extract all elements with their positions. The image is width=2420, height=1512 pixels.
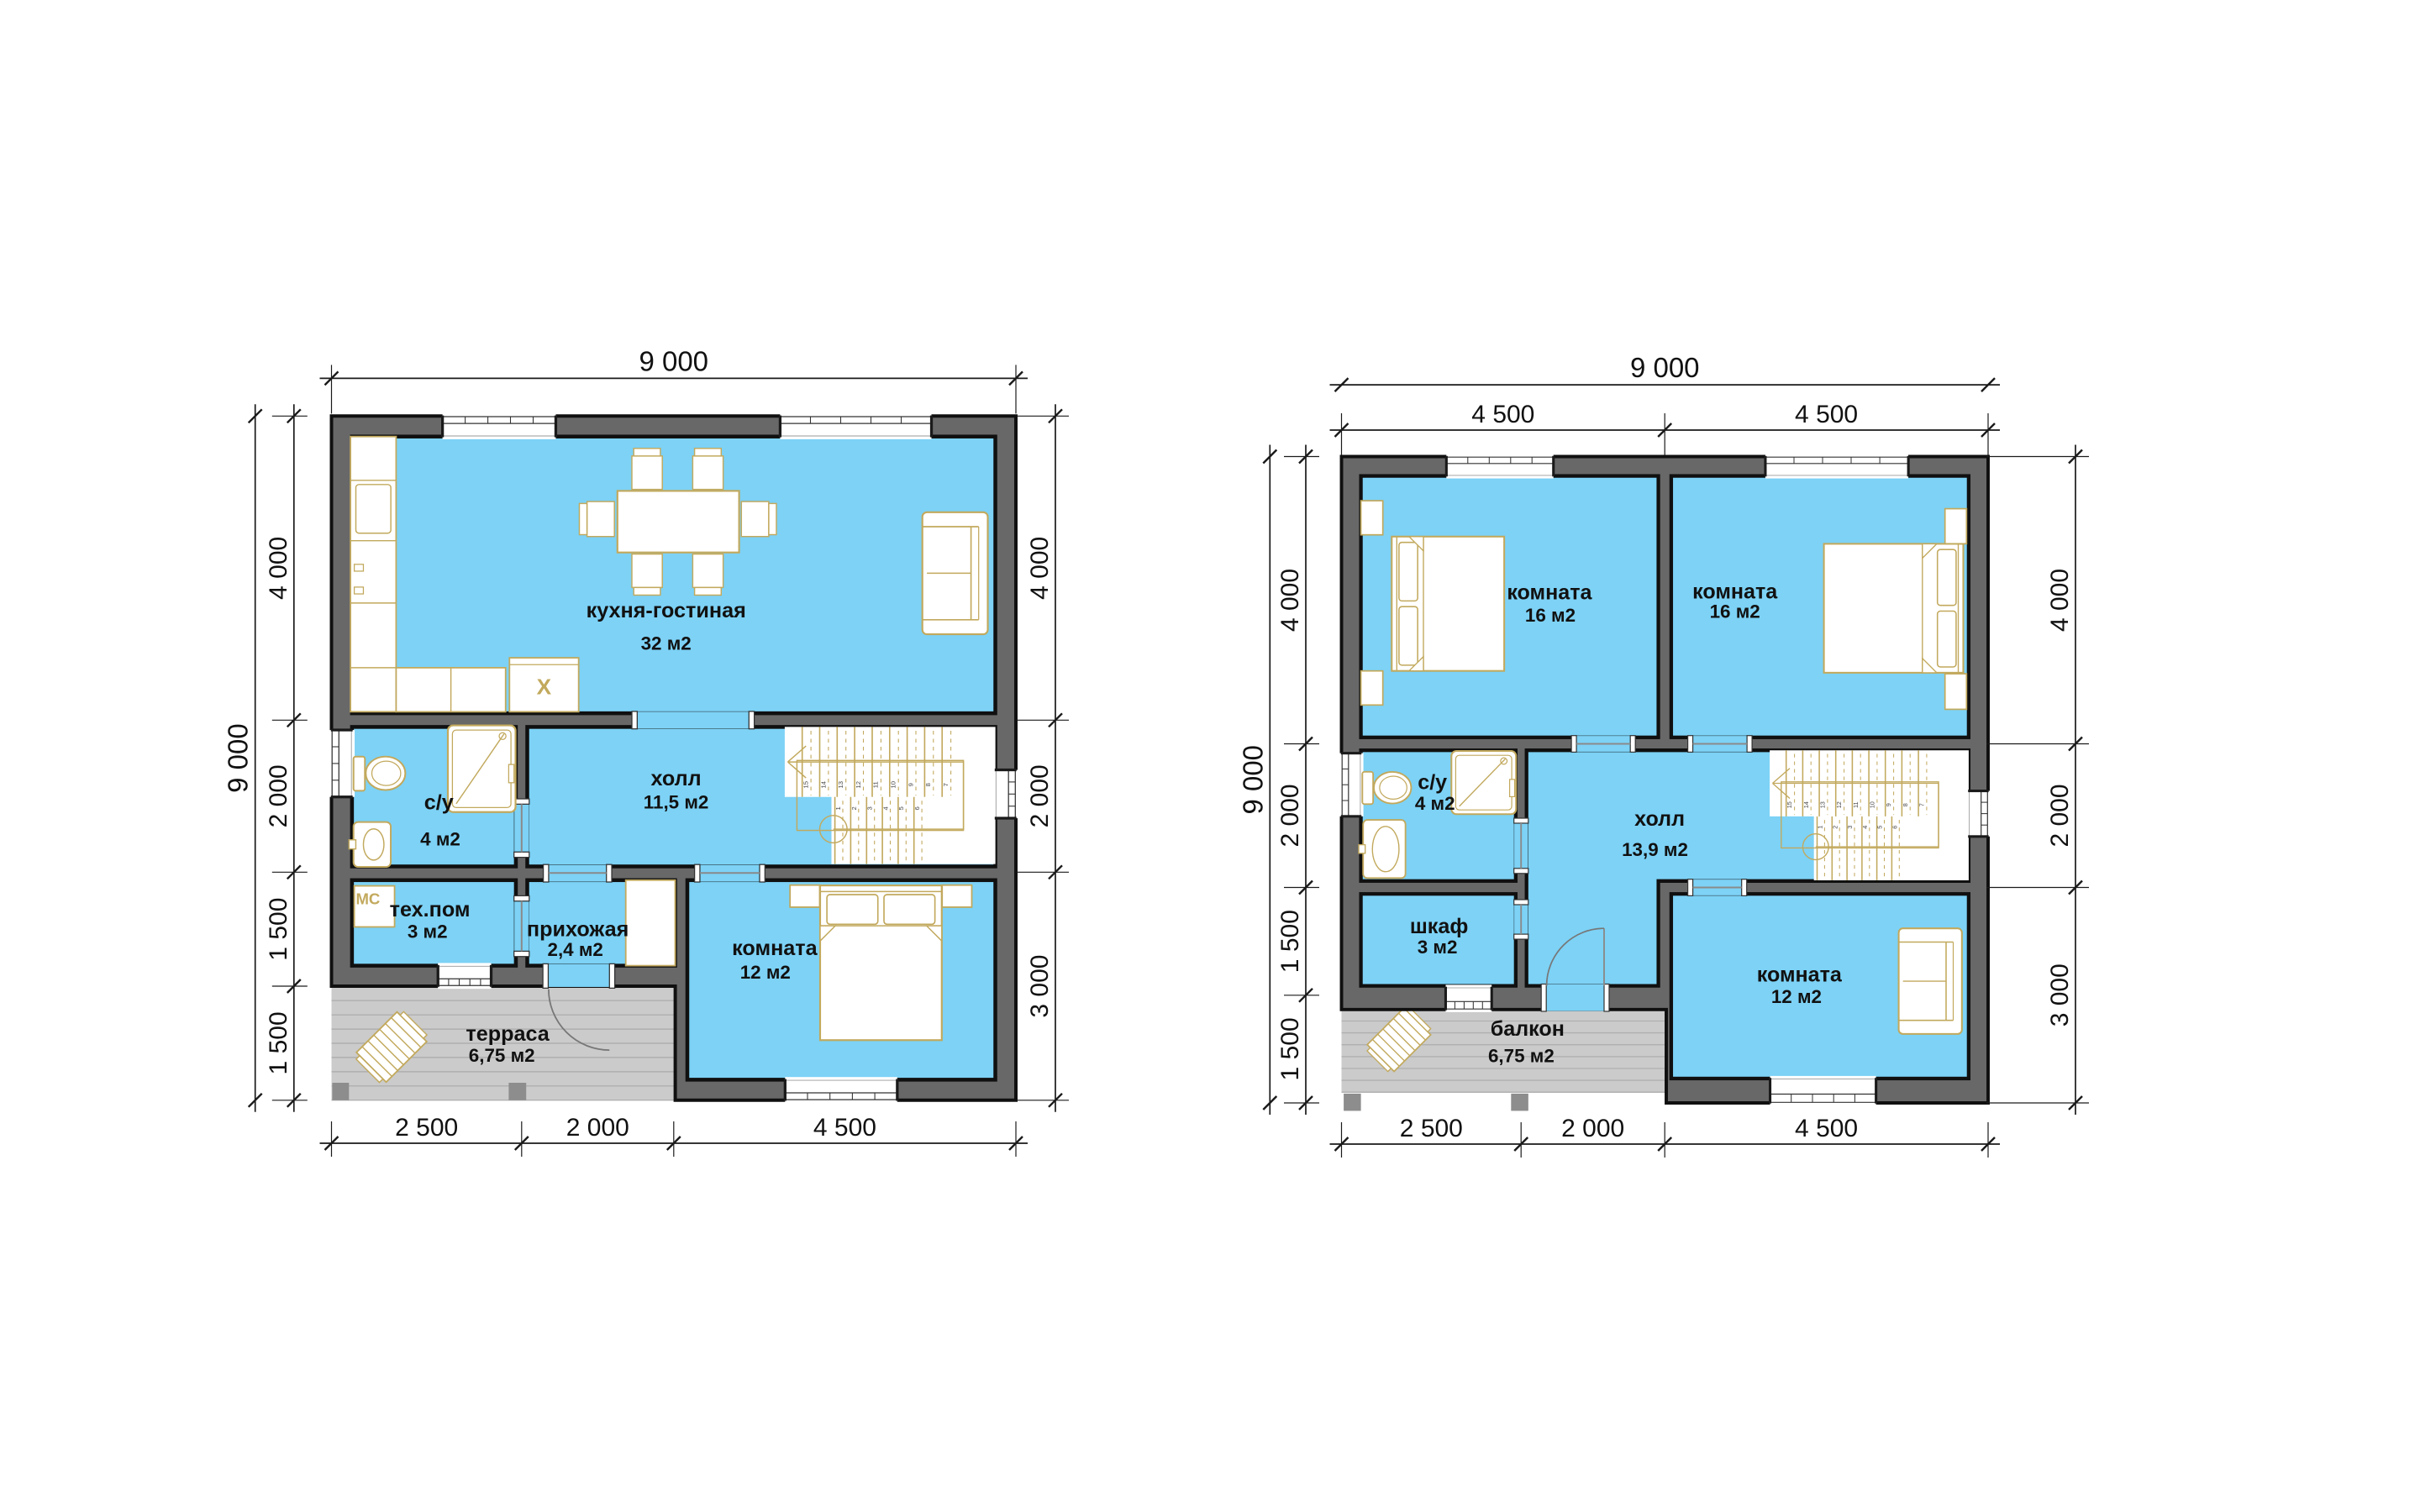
svg-text:16 м2: 16 м2 bbox=[1710, 601, 1760, 622]
svg-text:4 000: 4 000 bbox=[2046, 569, 2074, 632]
svg-text:11: 11 bbox=[872, 781, 880, 788]
svg-text:5: 5 bbox=[1876, 826, 1884, 829]
svg-text:1 500: 1 500 bbox=[1276, 1017, 1304, 1080]
svg-text:комната: комната bbox=[1507, 581, 1592, 605]
svg-text:2: 2 bbox=[1831, 826, 1839, 829]
svg-text:1 500: 1 500 bbox=[1276, 910, 1304, 973]
svg-text:X: X bbox=[537, 675, 552, 700]
svg-text:9: 9 bbox=[907, 783, 914, 786]
svg-text:11: 11 bbox=[1852, 801, 1860, 808]
svg-text:3 000: 3 000 bbox=[2046, 963, 2074, 1026]
svg-text:4 500: 4 500 bbox=[1471, 401, 1534, 428]
svg-text:13,9 м2: 13,9 м2 bbox=[1622, 839, 1688, 860]
svg-text:холл: холл bbox=[1634, 807, 1685, 831]
svg-text:5: 5 bbox=[897, 806, 905, 810]
svg-text:2 000: 2 000 bbox=[1026, 764, 1054, 827]
svg-text:8: 8 bbox=[1902, 803, 1909, 806]
svg-text:6,75 м2: 6,75 м2 bbox=[469, 1045, 535, 1066]
svg-text:12: 12 bbox=[1835, 801, 1843, 808]
svg-text:7: 7 bbox=[942, 783, 950, 786]
svg-text:2 000: 2 000 bbox=[566, 1114, 629, 1142]
svg-text:4: 4 bbox=[881, 806, 889, 810]
svg-text:2 500: 2 500 bbox=[1400, 1115, 1463, 1142]
svg-text:4 500: 4 500 bbox=[1795, 1115, 1858, 1142]
svg-text:комната: комната bbox=[1757, 963, 1843, 986]
svg-text:4 500: 4 500 bbox=[1795, 401, 1858, 428]
svg-text:с/у: с/у bbox=[424, 791, 454, 815]
svg-text:балкон: балкон bbox=[1491, 1017, 1565, 1041]
svg-text:МС: МС bbox=[355, 890, 380, 907]
svg-text:1 500: 1 500 bbox=[265, 898, 292, 961]
svg-text:14: 14 bbox=[819, 780, 827, 788]
svg-text:32 м2: 32 м2 bbox=[641, 633, 692, 654]
svg-text:15: 15 bbox=[802, 781, 810, 789]
svg-text:1 500: 1 500 bbox=[265, 1011, 292, 1074]
svg-text:9 000: 9 000 bbox=[1630, 352, 1700, 383]
svg-text:1: 1 bbox=[1817, 826, 1824, 829]
svg-text:4 000: 4 000 bbox=[1026, 537, 1054, 600]
svg-text:2: 2 bbox=[850, 806, 858, 810]
svg-text:шкаф: шкаф bbox=[1410, 915, 1468, 938]
svg-text:8: 8 bbox=[924, 783, 932, 786]
svg-text:2 000: 2 000 bbox=[1276, 784, 1304, 847]
svg-text:13: 13 bbox=[1819, 801, 1827, 808]
svg-text:1: 1 bbox=[834, 806, 842, 810]
svg-text:кухня-гостиная: кухня-гостиная bbox=[587, 599, 746, 622]
svg-text:4 м2: 4 м2 bbox=[1415, 793, 1455, 814]
svg-text:3 м2: 3 м2 bbox=[1418, 937, 1458, 958]
svg-text:16 м2: 16 м2 bbox=[1525, 605, 1576, 626]
svg-text:6: 6 bbox=[1891, 826, 1898, 829]
svg-text:тех.пом: тех.пом bbox=[390, 898, 471, 921]
svg-text:4 м2: 4 м2 bbox=[420, 829, 460, 850]
svg-text:3: 3 bbox=[866, 806, 874, 810]
svg-text:10: 10 bbox=[890, 781, 897, 789]
svg-text:9 000: 9 000 bbox=[1237, 745, 1268, 815]
svg-text:4 000: 4 000 bbox=[265, 537, 292, 600]
svg-text:комната: комната bbox=[1692, 580, 1778, 603]
svg-text:3 м2: 3 м2 bbox=[408, 921, 448, 942]
svg-text:2 000: 2 000 bbox=[2046, 784, 2074, 847]
svg-text:13: 13 bbox=[837, 781, 844, 789]
svg-text:терраса: терраса bbox=[466, 1022, 550, 1046]
svg-text:прихожая: прихожая bbox=[527, 917, 629, 941]
svg-text:10: 10 bbox=[1869, 801, 1876, 808]
svg-text:с/у: с/у bbox=[1418, 771, 1447, 795]
svg-text:4 500: 4 500 bbox=[813, 1114, 876, 1142]
svg-text:2 000: 2 000 bbox=[265, 764, 292, 827]
svg-text:7: 7 bbox=[1918, 803, 1926, 806]
svg-text:9: 9 bbox=[1885, 803, 1892, 806]
svg-text:комната: комната bbox=[732, 937, 818, 960]
svg-text:12 м2: 12 м2 bbox=[740, 962, 791, 983]
svg-text:3: 3 bbox=[1846, 826, 1854, 829]
svg-text:9 000: 9 000 bbox=[639, 345, 708, 376]
svg-text:11,5 м2: 11,5 м2 bbox=[644, 792, 709, 813]
svg-text:4 000: 4 000 bbox=[1276, 569, 1304, 632]
svg-text:15: 15 bbox=[1786, 801, 1793, 808]
svg-text:3 000: 3 000 bbox=[1026, 955, 1054, 1018]
svg-text:2 500: 2 500 bbox=[395, 1114, 458, 1142]
svg-text:12 м2: 12 м2 bbox=[1771, 986, 1822, 1007]
svg-text:2 000: 2 000 bbox=[1561, 1115, 1624, 1142]
svg-text:холл: холл bbox=[651, 767, 702, 790]
svg-text:6: 6 bbox=[913, 806, 921, 810]
svg-text:9 000: 9 000 bbox=[223, 723, 254, 793]
svg-text:2,4 м2: 2,4 м2 bbox=[548, 939, 603, 960]
svg-text:6,75 м2: 6,75 м2 bbox=[1488, 1046, 1555, 1067]
svg-text:12: 12 bbox=[855, 781, 862, 789]
svg-text:4: 4 bbox=[1861, 826, 1869, 829]
svg-text:14: 14 bbox=[1802, 801, 1810, 808]
